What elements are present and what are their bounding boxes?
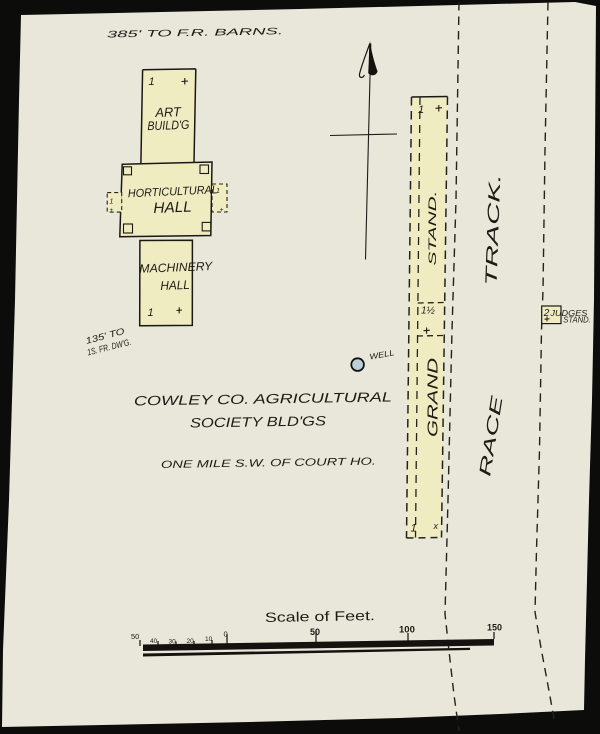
svg-text:1: 1 (148, 307, 154, 319)
svg-text:BUILD'G: BUILD'G (147, 118, 190, 133)
svg-text:Scale of Feet.: Scale of Feet. (265, 608, 375, 625)
svg-text:+: + (220, 207, 224, 214)
svg-text:HALL: HALL (160, 278, 190, 293)
svg-text:150: 150 (487, 623, 502, 633)
svg-text:1: 1 (110, 199, 114, 206)
svg-text:x: x (433, 521, 439, 531)
svg-text:2: 2 (543, 308, 550, 319)
svg-text:MACHINERY: MACHINERY (139, 259, 213, 276)
svg-text:STAND.: STAND. (563, 315, 591, 324)
svg-text:1: 1 (411, 523, 417, 535)
svg-text:SOCIETY BLD'GS: SOCIETY BLD'GS (190, 413, 326, 430)
svg-text:+: + (110, 208, 114, 214)
svg-text:50: 50 (131, 632, 139, 641)
svg-text:1½: 1½ (421, 306, 436, 317)
svg-text:50: 50 (310, 627, 320, 637)
svg-text:1: 1 (149, 76, 155, 88)
svg-text:GRAND: GRAND (425, 358, 442, 437)
svg-text:100: 100 (399, 625, 415, 636)
svg-text:40: 40 (150, 638, 158, 645)
svg-text:1: 1 (418, 104, 424, 116)
svg-text:HALL: HALL (153, 199, 192, 217)
svg-text:STAND.: STAND. (427, 191, 439, 266)
